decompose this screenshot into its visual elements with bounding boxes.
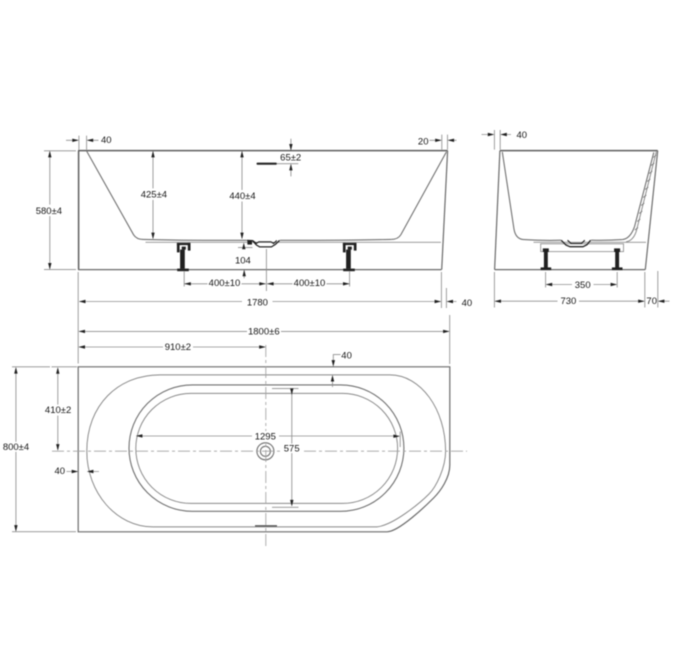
- svg-text:440±4: 440±4: [229, 191, 255, 202]
- svg-text:580±4: 580±4: [36, 206, 62, 217]
- svg-text:1780: 1780: [247, 298, 268, 309]
- svg-text:730: 730: [560, 296, 576, 307]
- svg-text:40: 40: [341, 350, 352, 361]
- svg-text:575: 575: [284, 444, 300, 455]
- svg-text:425±4: 425±4: [141, 190, 167, 201]
- svg-text:70: 70: [646, 296, 657, 307]
- svg-text:350: 350: [575, 280, 591, 291]
- svg-text:400±10: 400±10: [209, 278, 241, 289]
- svg-text:1295: 1295: [255, 432, 276, 443]
- svg-text:1800±6: 1800±6: [248, 327, 280, 338]
- svg-text:40: 40: [55, 466, 66, 477]
- svg-text:400±10: 400±10: [294, 278, 326, 289]
- svg-text:65±2: 65±2: [280, 152, 301, 163]
- svg-text:104: 104: [235, 256, 251, 267]
- svg-text:410±2: 410±2: [45, 405, 71, 416]
- svg-text:800±4: 800±4: [3, 442, 29, 453]
- svg-text:20: 20: [418, 137, 429, 148]
- svg-text:40: 40: [101, 135, 112, 146]
- svg-text:40: 40: [462, 298, 473, 309]
- svg-text:40: 40: [517, 130, 528, 141]
- svg-text:910±2: 910±2: [165, 342, 191, 353]
